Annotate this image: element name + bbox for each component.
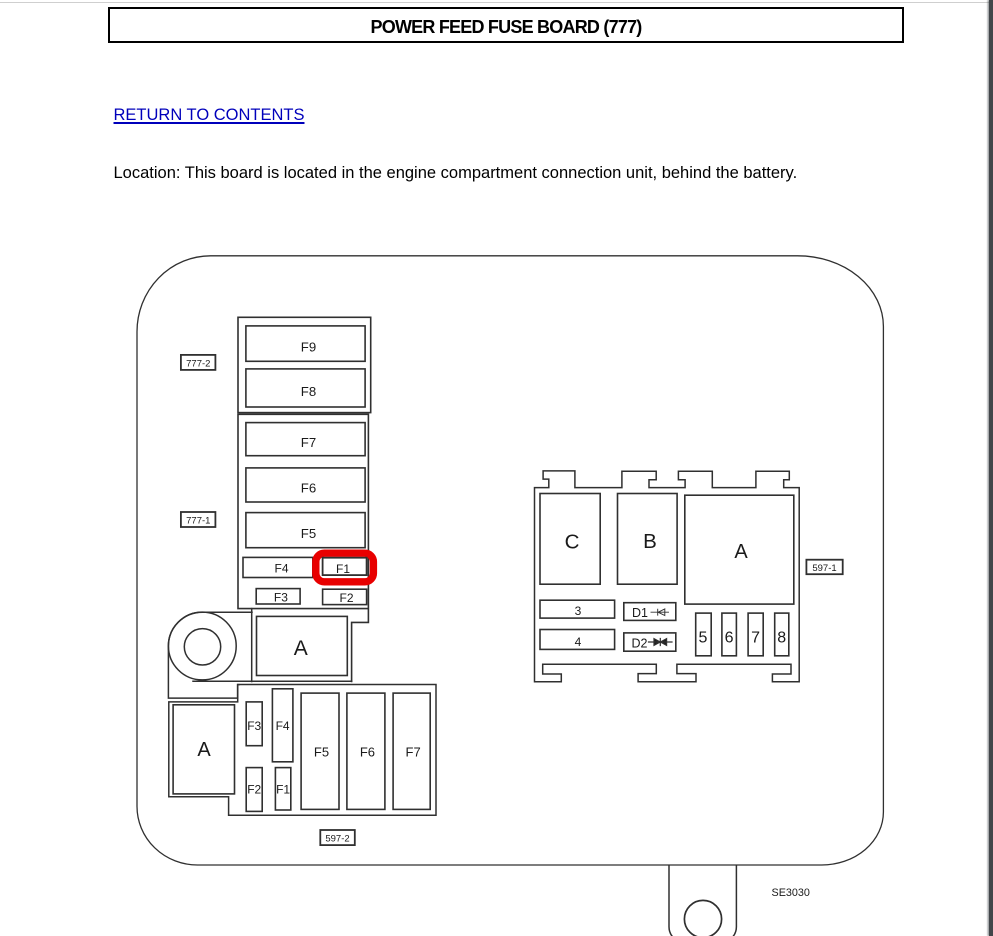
svg-text:F5: F5	[301, 526, 316, 541]
svg-text:F6: F6	[301, 481, 316, 496]
svg-text:F7: F7	[301, 435, 316, 450]
svg-text:F5: F5	[314, 744, 329, 759]
svg-text:D2: D2	[632, 636, 648, 650]
svg-text:6: 6	[725, 629, 734, 646]
svg-text:B: B	[643, 530, 657, 553]
svg-text:597-2: 597-2	[325, 834, 349, 845]
svg-text:F6: F6	[360, 744, 375, 759]
svg-text:F1: F1	[276, 783, 290, 797]
svg-text:F3: F3	[274, 590, 288, 604]
svg-text:A: A	[294, 637, 308, 660]
svg-text:F2: F2	[247, 783, 261, 797]
svg-text:C: C	[565, 530, 580, 553]
svg-text:F3: F3	[247, 719, 261, 733]
svg-text:F4: F4	[276, 719, 290, 733]
svg-text:F7: F7	[406, 744, 421, 759]
svg-text:4: 4	[575, 635, 582, 649]
svg-text:F8: F8	[301, 384, 316, 399]
svg-text:SE3030: SE3030	[772, 887, 810, 899]
svg-text:F9: F9	[301, 339, 316, 354]
svg-text:8: 8	[777, 629, 786, 646]
svg-text:3: 3	[575, 604, 582, 618]
svg-text:A: A	[734, 541, 748, 563]
svg-text:F1: F1	[336, 562, 350, 576]
svg-text:A: A	[197, 739, 211, 761]
svg-text:F2: F2	[339, 591, 353, 605]
svg-text:F4: F4	[274, 561, 288, 575]
svg-text:5: 5	[699, 629, 708, 646]
svg-text:7: 7	[751, 629, 760, 646]
svg-text:D1: D1	[632, 606, 648, 620]
svg-text:597-1: 597-1	[812, 563, 836, 574]
svg-text:777-2: 777-2	[186, 359, 210, 370]
svg-text:777-1: 777-1	[186, 516, 210, 527]
